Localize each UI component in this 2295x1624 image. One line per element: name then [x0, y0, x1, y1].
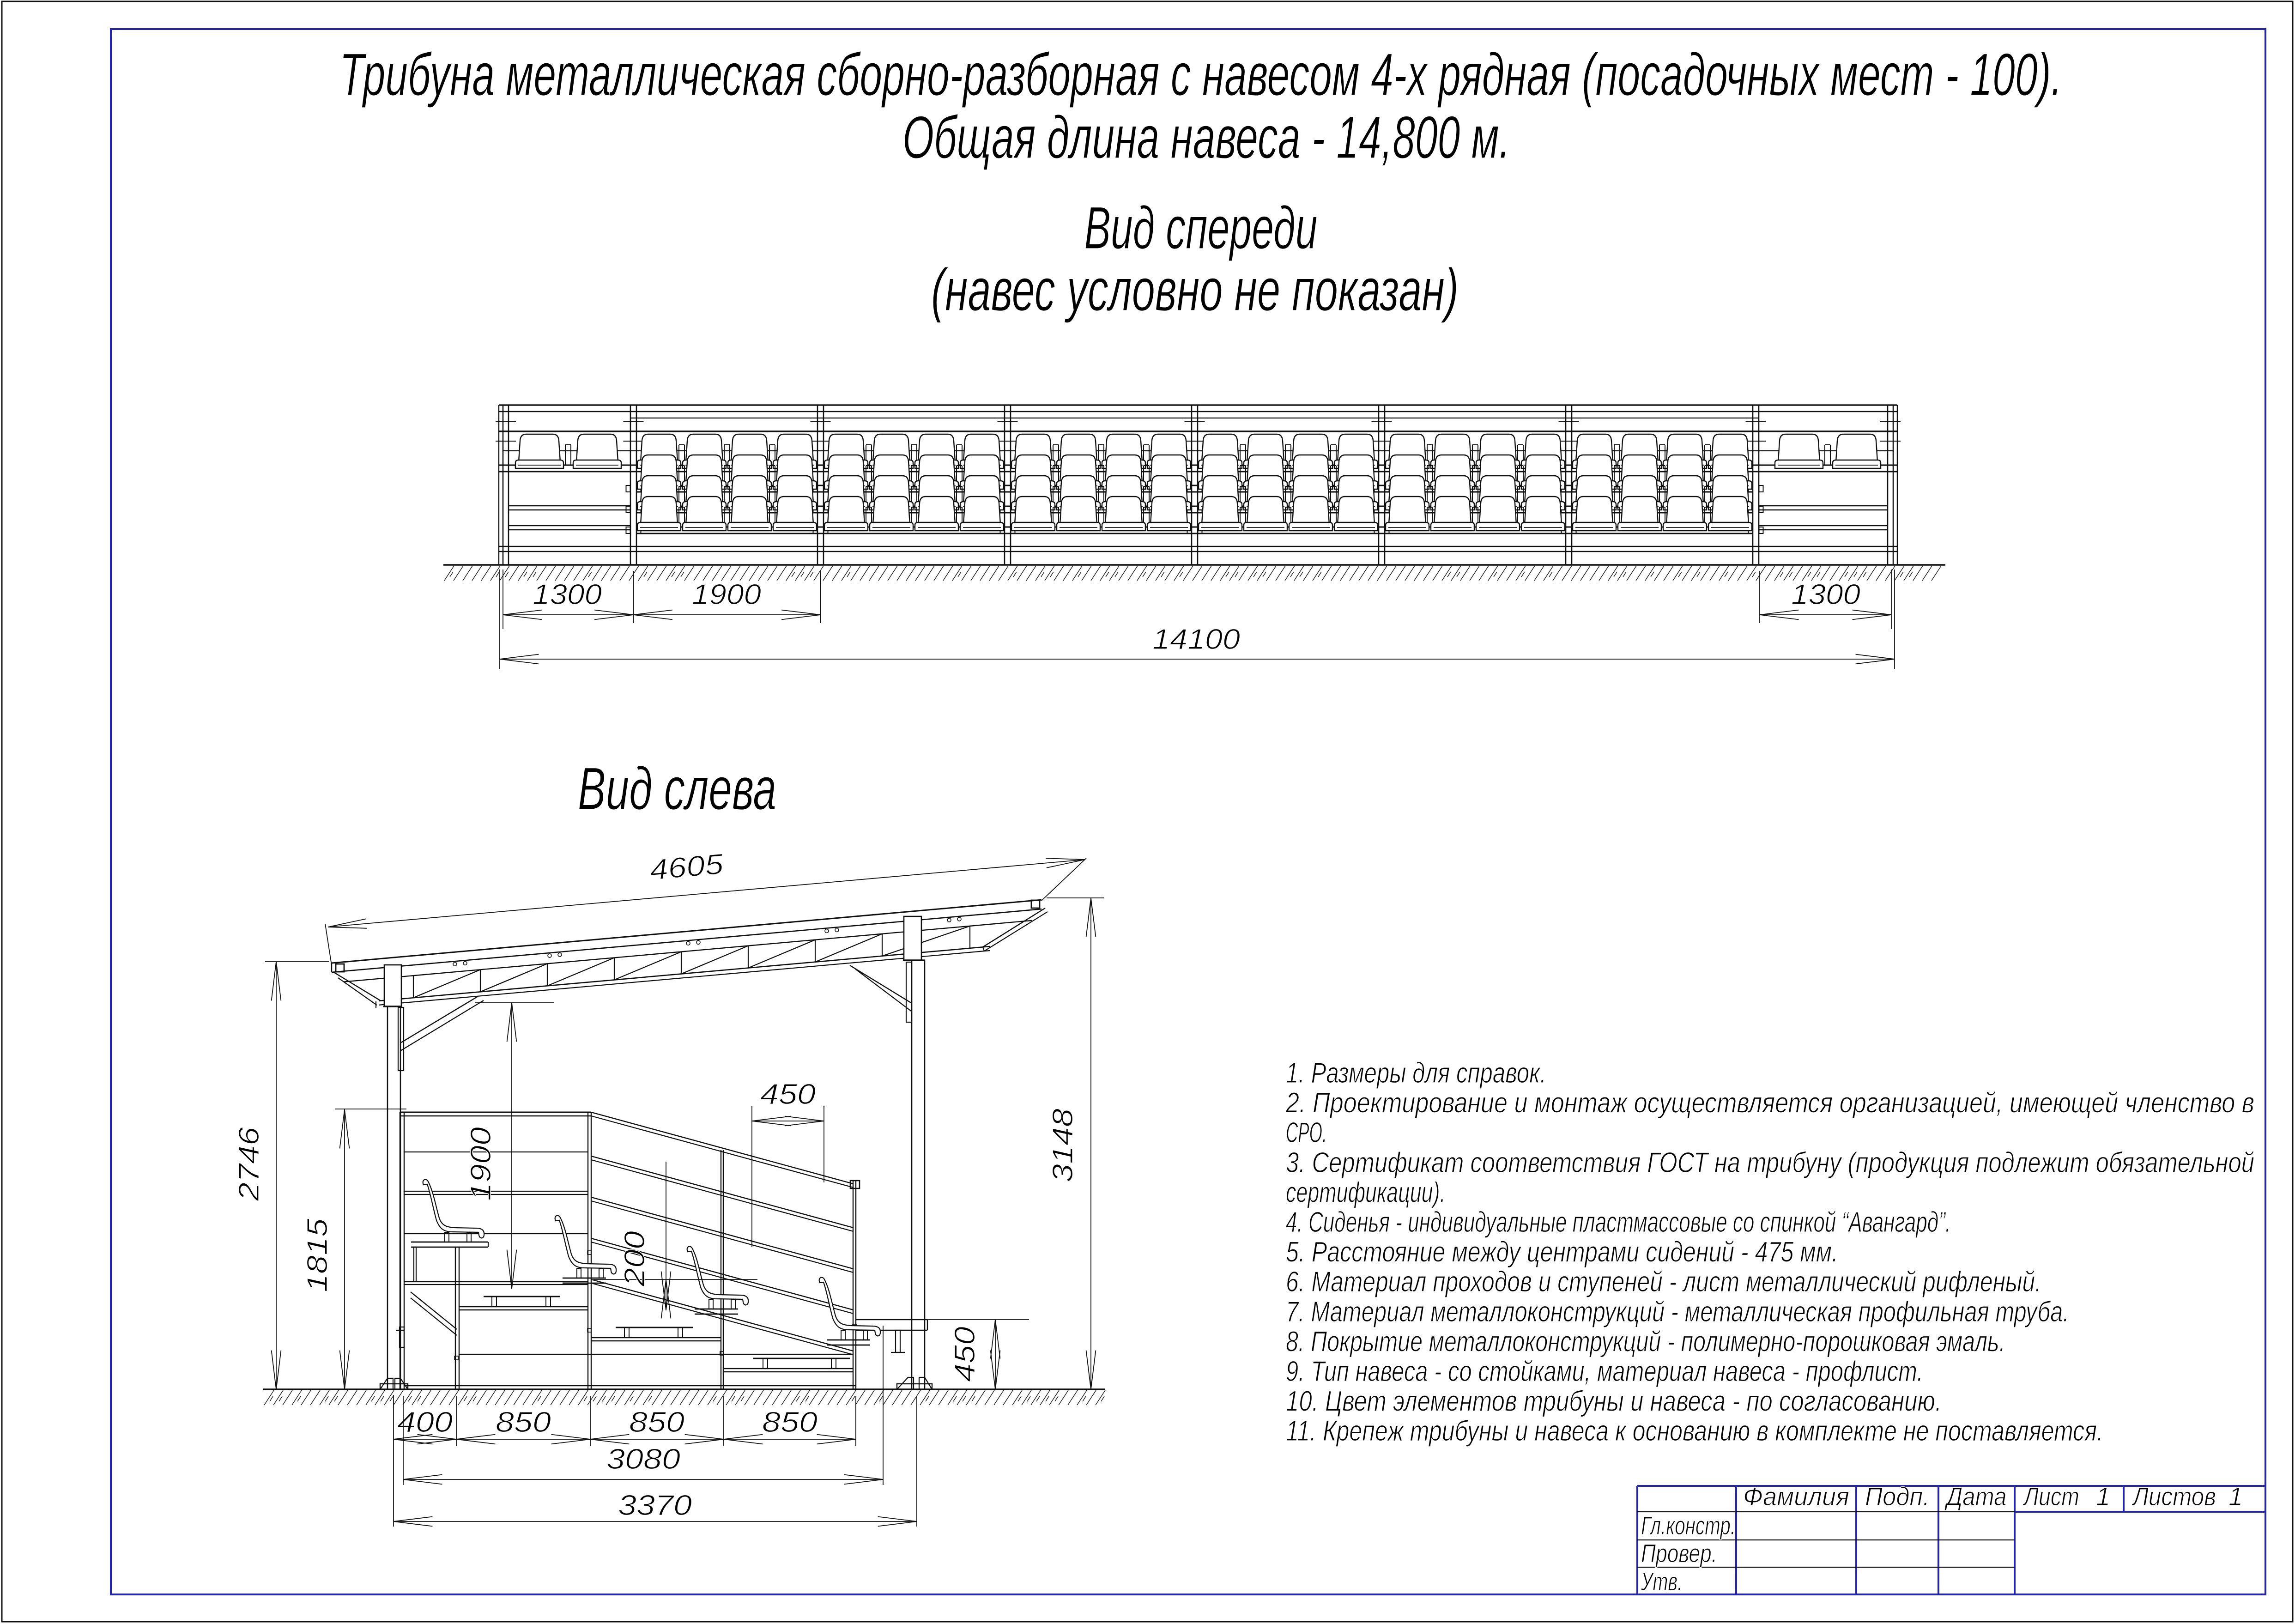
svg-text:1300: 1300 [533, 579, 602, 611]
svg-text:Листов: Листов [2132, 1482, 2216, 1511]
svg-text:850: 850 [762, 1406, 817, 1438]
svg-text:450: 450 [949, 1327, 981, 1382]
svg-text:сертификации).: сертификации). [1286, 1176, 1446, 1208]
svg-text:1815: 1815 [302, 1218, 333, 1292]
svg-text:3370: 3370 [618, 1490, 692, 1521]
svg-text:11. Крепеж трибуны и навеса к: 11. Крепеж трибуны и навеса к основанию … [1286, 1415, 2103, 1447]
svg-text:Дата: Дата [1944, 1482, 2006, 1511]
svg-text:1. Размеры для справок.: 1. Размеры для справок. [1286, 1057, 1546, 1089]
svg-text:3080: 3080 [606, 1443, 680, 1475]
svg-text:7. Материал металлоконструкци: 7. Материал металлоконструкций - металли… [1286, 1296, 2069, 1328]
svg-text:6. Материал проходов и ступен: 6. Материал проходов и ступеней - лист м… [1286, 1266, 2041, 1298]
svg-text:200: 200 [619, 1231, 651, 1287]
svg-text:3148: 3148 [1047, 1108, 1079, 1182]
svg-text:Подп.: Подп. [1865, 1482, 1930, 1511]
svg-text:1: 1 [2228, 1482, 2243, 1511]
svg-text:Трибуна металлическая сборно-р: Трибуна металлическая сборно-разборная с… [339, 41, 2062, 108]
svg-text:3. Сертификат соответствия ГО: 3. Сертификат соответствия ГОСТ на трибу… [1286, 1147, 2254, 1179]
svg-text:(навес условно не показан): (навес условно не показан) [931, 256, 1459, 323]
svg-text:Вид спереди: Вид спереди [1084, 194, 1318, 261]
svg-text:5. Расстояние между центрами: 5. Расстояние между центрами сидений - 4… [1286, 1236, 1838, 1268]
svg-text:4605: 4605 [648, 848, 725, 886]
svg-text:450: 450 [760, 1079, 816, 1110]
svg-text:2. Проектирование и монтаж ос: 2. Проектирование и монтаж осуществляетс… [1285, 1087, 2254, 1119]
svg-text:Общая длина навеса - 14,800 м.: Общая длина навеса - 14,800 м. [902, 103, 1510, 171]
svg-text:850: 850 [629, 1406, 684, 1438]
svg-text:4. Сиденья - индивидуальные п: 4. Сиденья - индивидуальные пластмассовы… [1286, 1206, 1951, 1238]
svg-text:Фамилия: Фамилия [1743, 1482, 1849, 1511]
svg-text:400: 400 [397, 1406, 453, 1438]
svg-text:СРО.: СРО. [1286, 1117, 1327, 1149]
svg-text:Утв.: Утв. [1641, 1567, 1683, 1596]
svg-text:1900: 1900 [692, 579, 761, 611]
svg-text:14100: 14100 [1152, 624, 1240, 655]
svg-text:Вид слева: Вид слева [578, 755, 776, 822]
svg-text:2746: 2746 [233, 1127, 265, 1201]
svg-text:Лист: Лист [2023, 1482, 2079, 1511]
svg-text:850: 850 [496, 1406, 551, 1438]
svg-text:Провер.: Провер. [1641, 1539, 1717, 1568]
svg-text:9. Тип навеса - со стойками,: 9. Тип навеса - со стойками, материал на… [1286, 1356, 1923, 1388]
svg-text:Гл.констр.: Гл.констр. [1641, 1511, 1736, 1540]
svg-text:10. Цвет элементов трибуны и: 10. Цвет элементов трибуны и навеса - по… [1286, 1386, 1942, 1418]
svg-text:8. Покрытие металлоконструкци: 8. Покрытие металлоконструкций - полимер… [1286, 1326, 2005, 1357]
svg-text:1300: 1300 [1791, 579, 1860, 611]
svg-text:1900: 1900 [465, 1127, 497, 1201]
svg-text:1: 1 [2096, 1482, 2110, 1511]
